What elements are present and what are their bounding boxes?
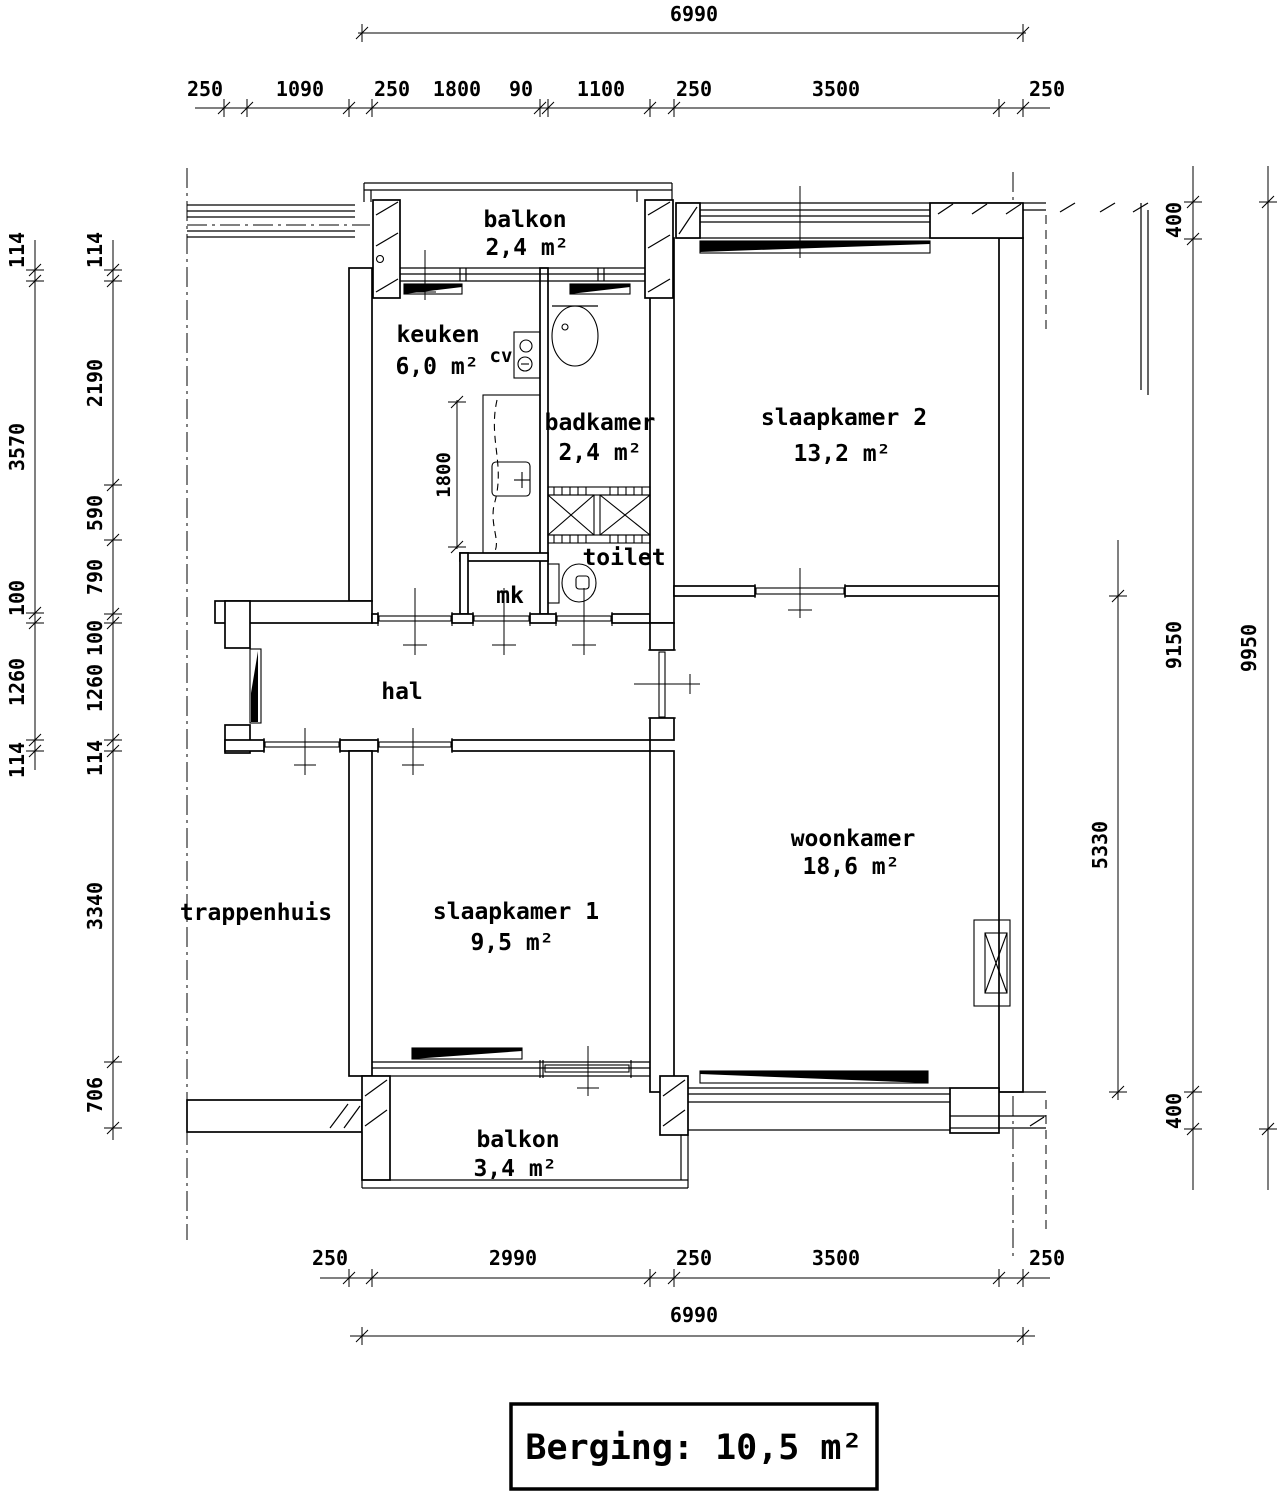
- dim-label: 2990: [489, 1246, 537, 1270]
- dim-label: 5330: [1088, 821, 1112, 869]
- dim-label: 250: [187, 77, 223, 101]
- window-band-keuken-badkamer: [400, 268, 645, 281]
- dimension-left-inner: 114 2190 590 790 100 1260 114 3340 706: [83, 232, 122, 1140]
- dim-label: 590: [83, 495, 107, 531]
- room-balkon-south-name: balkon: [476, 1127, 559, 1153]
- dimension-bottom-chain: 250 2990 250 3500 250: [312, 1246, 1065, 1287]
- berging-box: Berging: 10,5 m²: [511, 1404, 877, 1489]
- room-slaapkamer1-area: 9,5 m²: [470, 930, 553, 956]
- dimension-bottom-total: 6990: [350, 1303, 1035, 1345]
- dimension-top-chain: 250 1090 250 1800 90 1100 250 3500 250: [187, 77, 1065, 117]
- front-door-icon: [250, 649, 261, 723]
- room-woonkamer-name: woonkamer: [791, 826, 916, 852]
- dimension-right-9950: 9950: [1237, 166, 1277, 1190]
- dim-label: 1100: [577, 77, 625, 101]
- room-slaapkamer2-name: slaapkamer 2: [761, 405, 927, 431]
- dim-label: 2190: [83, 359, 107, 407]
- floor-plan: 1800: [0, 0, 1280, 1495]
- room-labels: balkon 2,4 m² keuken 6,0 m² cv badkamer …: [180, 207, 927, 1182]
- dim-label: 790: [83, 559, 107, 595]
- dimension-top-total: 6990: [356, 2, 1029, 42]
- dim-label: 9950: [1237, 624, 1261, 672]
- dim-label: 114: [83, 232, 107, 268]
- berging-label: Berging: 10,5 m²: [525, 1428, 862, 1468]
- dim-label: 250: [312, 1246, 348, 1270]
- room-cv-name: cv: [490, 345, 513, 367]
- dim-label: 250: [676, 77, 712, 101]
- cv-boiler-icon: [514, 332, 540, 378]
- counter-dimension: 1800: [433, 396, 466, 553]
- dimension-left-outer: 114 3570 100 1260 114: [5, 232, 44, 778]
- neighbour-wall-top-left: [187, 205, 355, 237]
- dim-label: 1090: [276, 77, 324, 101]
- room-slaapkamer1-name: slaapkamer 1: [433, 899, 599, 925]
- dim-label: 250: [1029, 1246, 1065, 1270]
- window-band-slaapkamer2-north: [676, 203, 1148, 395]
- dimension-right-5330: 5330: [1088, 540, 1127, 1100]
- shafts: [548, 487, 650, 543]
- dim-label: 114: [83, 740, 107, 776]
- room-balkon-south-area: 3,4 m²: [473, 1156, 556, 1182]
- room-keuken-name: keuken: [396, 322, 479, 348]
- room-balkon-north-name: balkon: [483, 207, 566, 233]
- room-keuken-area: 6,0 m²: [395, 354, 478, 380]
- floor-plan-canvas: 1800: [0, 0, 1280, 1495]
- dim-label: 1260: [83, 664, 107, 712]
- room-toilet-name: toilet: [582, 545, 665, 571]
- kitchen-counter: [483, 395, 540, 553]
- washbasin-icon: [552, 306, 598, 366]
- room-mk-name: mk: [496, 583, 524, 609]
- dim-label: 114: [5, 232, 29, 268]
- dim-top-total: 6990: [670, 2, 718, 26]
- dim-label: 3570: [5, 423, 29, 471]
- counter-length-label: 1800: [433, 452, 455, 498]
- dim-label: 1800: [433, 77, 481, 101]
- dim-label: 9150: [1162, 621, 1186, 669]
- dim-label: 3340: [83, 882, 107, 930]
- room-trappenhuis-name: trappenhuis: [180, 900, 332, 926]
- dim-label: 400: [1162, 1093, 1186, 1129]
- dim-label: 1260: [5, 658, 29, 706]
- dim-label: 400: [1162, 202, 1186, 238]
- window-band-woonkamer-south: [674, 1088, 950, 1102]
- dim-label: 100: [83, 620, 107, 656]
- dim-label: 706: [83, 1077, 107, 1113]
- room-badkamer-area: 2,4 m²: [558, 440, 641, 466]
- dim-label: 250: [1029, 77, 1065, 101]
- dim-label: 90: [509, 77, 533, 101]
- room-slaapkamer2-area: 13,2 m²: [794, 441, 891, 467]
- section-lines: [187, 168, 1046, 1260]
- dim-label: 100: [5, 580, 29, 616]
- dim-label: 250: [374, 77, 410, 101]
- walls: [187, 238, 1046, 1133]
- dim-label: 3500: [812, 77, 860, 101]
- dim-label: 6990: [670, 1303, 718, 1327]
- room-hal-name: hal: [381, 679, 423, 705]
- dim-label: 250: [676, 1246, 712, 1270]
- room-badkamer-name: badkamer: [545, 410, 656, 436]
- room-balkon-north-area: 2,4 m²: [485, 235, 568, 261]
- window-band-slaapkamer1-south: [372, 1060, 650, 1078]
- dim-label: 3500: [812, 1246, 860, 1270]
- room-woonkamer-area: 18,6 m²: [803, 854, 900, 880]
- dimension-right-9150: 400 9150 400: [1162, 166, 1202, 1190]
- dim-label: 114: [5, 742, 29, 778]
